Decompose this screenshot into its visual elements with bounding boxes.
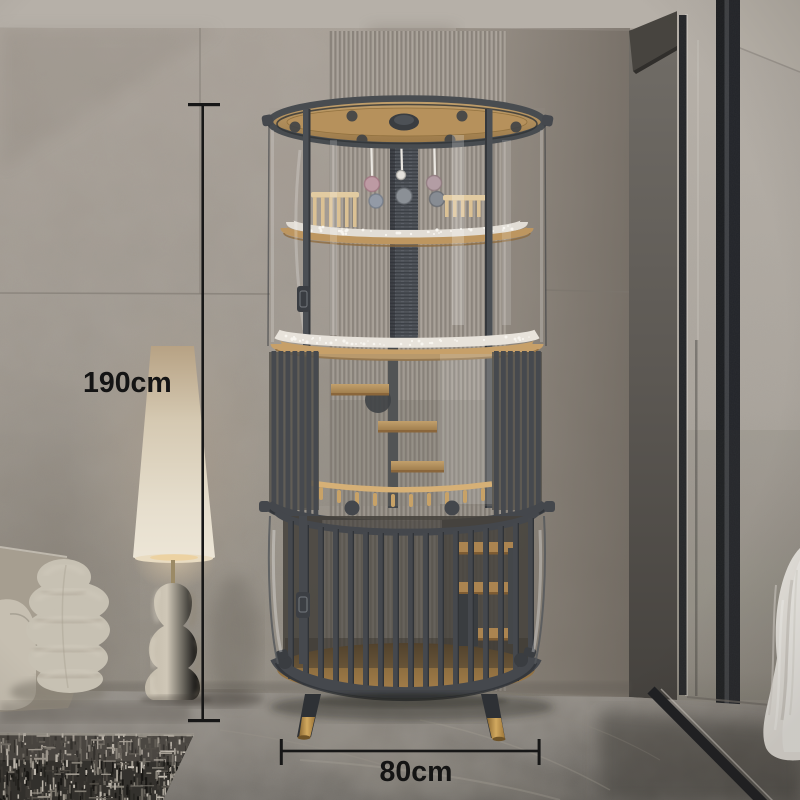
svg-text:190cm: 190cm [83, 367, 172, 399]
svg-text:80cm: 80cm [380, 756, 453, 788]
